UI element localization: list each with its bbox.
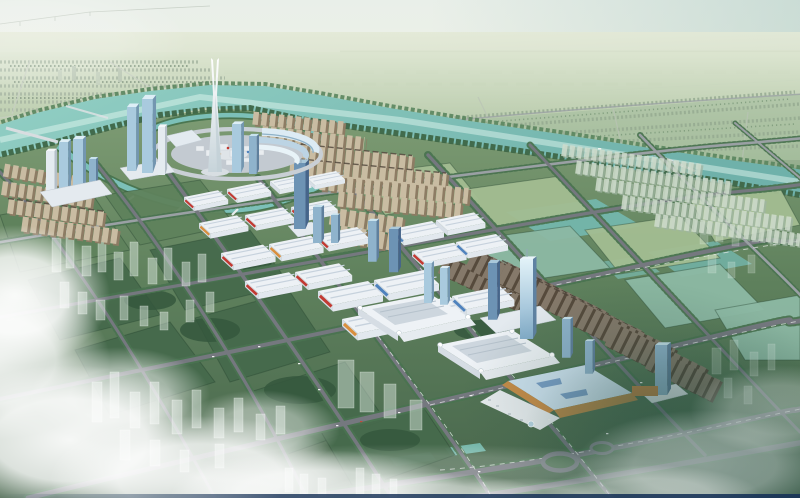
aerial-city-rendering: Aerial rendering of a planned riverside … [0,0,800,498]
bottom-edge-strip [0,494,800,498]
boat [598,148,601,150]
